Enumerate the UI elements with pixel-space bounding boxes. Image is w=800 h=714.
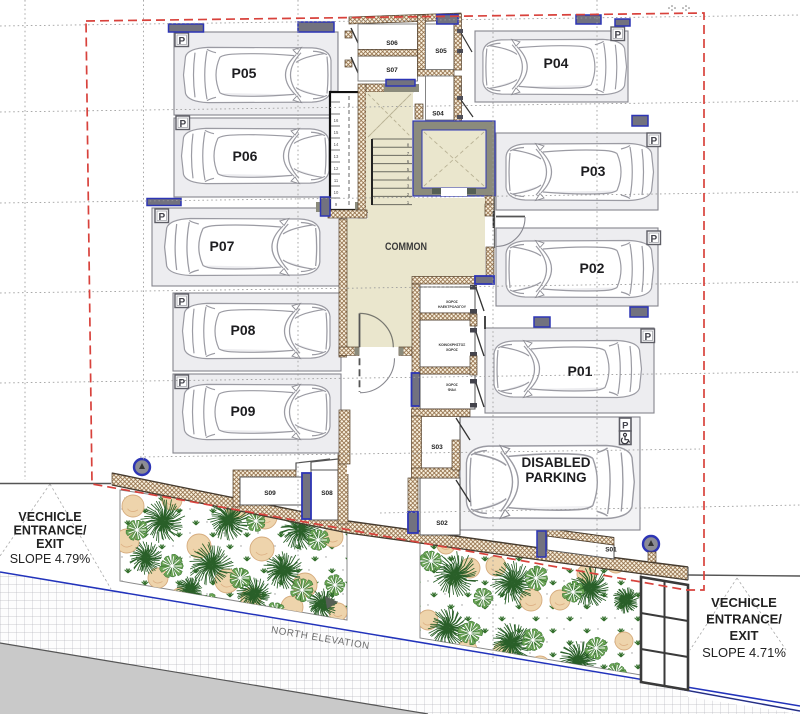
- svg-text:S08: S08: [321, 490, 333, 497]
- svg-text:13: 13: [334, 154, 339, 159]
- svg-text:S06: S06: [386, 40, 398, 47]
- svg-text:COMMON: COMMON: [385, 241, 427, 253]
- svg-text:P: P: [179, 119, 186, 130]
- svg-text:P: P: [622, 421, 629, 432]
- svg-text:S03: S03: [431, 444, 443, 451]
- svg-text:P03: P03: [581, 163, 606, 179]
- svg-text:ΧΩΡΟΣ: ΧΩΡΟΣ: [446, 300, 458, 304]
- svg-text:P: P: [644, 332, 651, 343]
- svg-text:ΚΟΙΝΟΧΡΗΣΤΟΣ: ΚΟΙΝΟΧΡΗΣΤΟΣ: [439, 343, 466, 347]
- svg-text:P: P: [178, 378, 185, 389]
- svg-text:P02: P02: [580, 260, 605, 276]
- svg-text:DISABLED: DISABLED: [521, 455, 590, 470]
- svg-text:VECHICLE: VECHICLE: [18, 510, 81, 524]
- svg-text:16: 16: [334, 118, 339, 123]
- svg-text:ENTRANCE/: ENTRANCE/: [14, 524, 87, 538]
- svg-text:S02: S02: [436, 520, 448, 527]
- svg-text:ΧΩΡΟΣ: ΧΩΡΟΣ: [446, 348, 458, 352]
- svg-text:P: P: [650, 234, 657, 245]
- svg-text:10: 10: [334, 190, 339, 195]
- svg-text:VECHICLE: VECHICLE: [711, 595, 777, 610]
- svg-text:P06: P06: [233, 148, 258, 164]
- svg-text:S04: S04: [432, 111, 444, 118]
- svg-text:P01: P01: [568, 363, 593, 379]
- svg-text:ΧΩΡΟΣ: ΧΩΡΟΣ: [446, 383, 458, 387]
- svg-text:P: P: [158, 212, 165, 223]
- svg-text:P: P: [178, 36, 185, 47]
- svg-text:SLOPE 4.79%: SLOPE 4.79%: [10, 552, 91, 566]
- svg-text:S07: S07: [386, 67, 398, 74]
- svg-text:P09: P09: [231, 403, 256, 419]
- svg-text:15: 15: [334, 130, 339, 135]
- svg-text:12: 12: [334, 166, 339, 171]
- svg-text:S01: S01: [605, 547, 617, 554]
- svg-text:102: 102: [458, 85, 462, 91]
- svg-text:P: P: [650, 136, 657, 147]
- svg-text:P: P: [178, 297, 185, 308]
- svg-text:SLOPE 4.71%: SLOPE 4.71%: [702, 645, 786, 660]
- svg-text:ΦΙΑΛ: ΦΙΑΛ: [448, 388, 457, 392]
- svg-text:S05: S05: [435, 48, 447, 55]
- svg-text:EXIT: EXIT: [36, 537, 64, 551]
- svg-text:P05: P05: [232, 65, 257, 81]
- svg-text:14: 14: [334, 142, 339, 147]
- svg-text:P07: P07: [210, 238, 235, 254]
- svg-text:ENTRANCE/: ENTRANCE/: [706, 612, 782, 627]
- svg-text:P04: P04: [544, 55, 569, 71]
- svg-text:P08: P08: [231, 322, 256, 338]
- svg-text:P: P: [614, 30, 621, 41]
- svg-text:11: 11: [334, 178, 339, 183]
- svg-text:PARKING: PARKING: [525, 470, 586, 485]
- svg-text:S09: S09: [264, 490, 276, 497]
- svg-text:102: 102: [458, 49, 462, 55]
- svg-text:ΗΛΕΚΤΡΟΛΟΓΟΥ: ΗΛΕΚΤΡΟΛΟΓΟΥ: [438, 305, 467, 309]
- svg-text:EXIT: EXIT: [730, 628, 759, 643]
